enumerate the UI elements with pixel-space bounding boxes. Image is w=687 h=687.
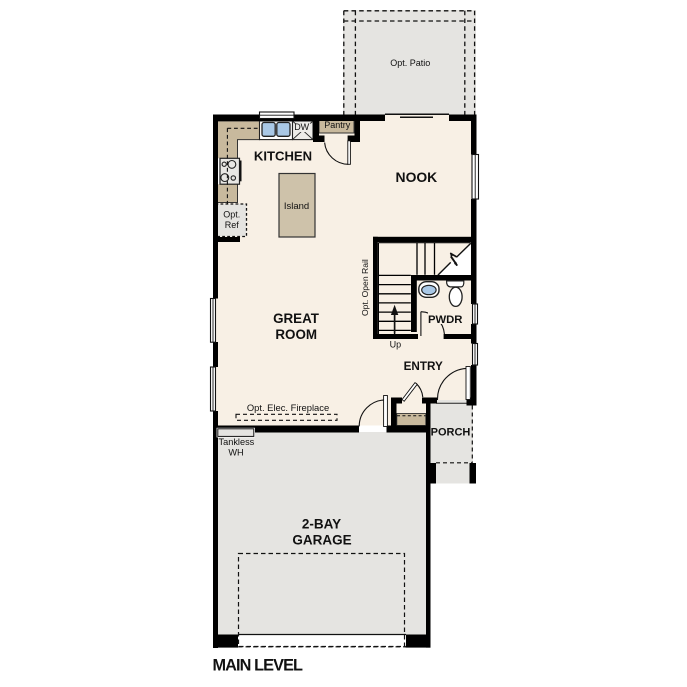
svg-text:PORCH: PORCH: [431, 427, 471, 439]
svg-text:Island: Island: [284, 201, 309, 212]
svg-text:MAIN LEVEL: MAIN LEVEL: [213, 657, 304, 675]
svg-text:Opt. Elec. Fireplace: Opt. Elec. Fireplace: [247, 402, 329, 413]
svg-text:WH: WH: [228, 448, 243, 458]
svg-text:Up: Up: [390, 339, 402, 349]
svg-text:ENTRY: ENTRY: [404, 360, 443, 373]
svg-text:Opt.: Opt.: [223, 209, 240, 219]
svg-text:2-BAY: 2-BAY: [302, 516, 341, 531]
svg-text:GARAGE: GARAGE: [292, 533, 351, 548]
svg-text:Opt. Open Rail: Opt. Open Rail: [360, 259, 370, 316]
svg-text:Pantry: Pantry: [324, 120, 351, 130]
svg-text:ROOM: ROOM: [275, 327, 317, 342]
svg-text:KITCHEN: KITCHEN: [254, 148, 312, 163]
svg-text:NOOK: NOOK: [396, 169, 438, 185]
svg-text:PWDR: PWDR: [428, 314, 463, 326]
svg-text:Tankless: Tankless: [219, 437, 255, 447]
svg-text:Opt. Patio: Opt. Patio: [390, 58, 430, 68]
svg-text:DW: DW: [294, 122, 309, 132]
svg-text:Ref: Ref: [225, 220, 240, 230]
svg-text:GREAT: GREAT: [273, 311, 320, 326]
